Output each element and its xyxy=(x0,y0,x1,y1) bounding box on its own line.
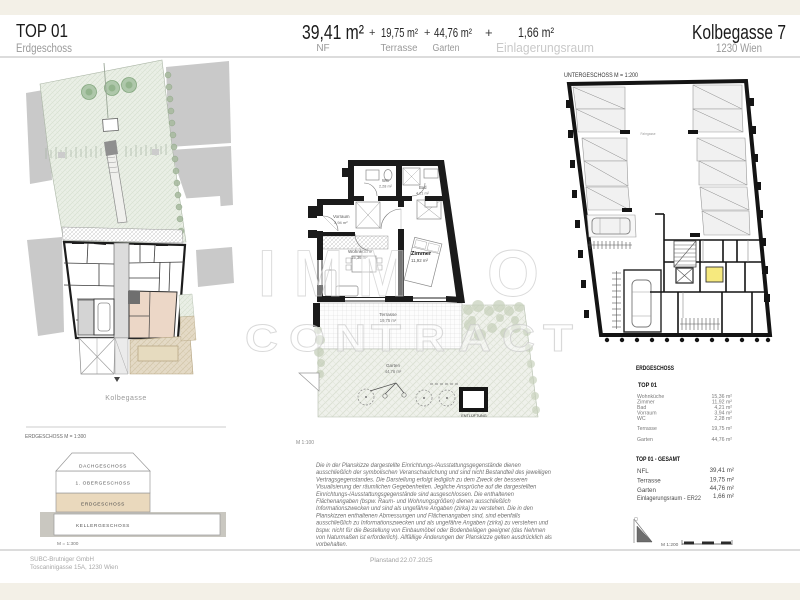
svg-text:ERDGESCHOSS M = 1:300: ERDGESCHOSS M = 1:300 xyxy=(25,434,86,440)
svg-text:44,76 m²: 44,76 m² xyxy=(712,437,733,443)
svg-text:Garten: Garten xyxy=(433,43,460,54)
svg-text:1230 Wien: 1230 Wien xyxy=(716,43,762,55)
svg-text:Visualisierung der räumlichen: Visualisierung der räumlichen Gegebenhei… xyxy=(316,484,537,490)
svg-text:WC: WC xyxy=(382,178,389,183)
svg-text:Kolbegasse 7: Kolbegasse 7 xyxy=(692,22,786,44)
svg-text:Garten: Garten xyxy=(637,437,653,443)
svg-text:NFL: NFL xyxy=(637,468,649,475)
svg-text:Einlagerungsraum - ER22: Einlagerungsraum - ER22 xyxy=(637,495,701,502)
svg-text:Die in der Planskizze dargeste: Die in der Planskizze dargestellte Einri… xyxy=(316,463,521,469)
svg-text:Terrasse: Terrasse xyxy=(637,426,657,432)
svg-text:ENTLÜFTUNG: ENTLÜFTUNG xyxy=(461,414,487,418)
svg-text:44,76 m²: 44,76 m² xyxy=(434,25,472,40)
svg-text:Zimmer: Zimmer xyxy=(411,251,432,257)
svg-text:Garten: Garten xyxy=(637,487,656,494)
svg-text:UNTERGESCHOSS M = 1:200: UNTERGESCHOSS M = 1:200 xyxy=(564,73,639,79)
svg-text:C: C xyxy=(502,318,535,360)
svg-text:Terrasse: Terrasse xyxy=(381,43,418,54)
svg-text:TOP 01: TOP 01 xyxy=(638,382,657,389)
svg-text:DACHGESCHOSS: DACHGESCHOSS xyxy=(79,464,127,470)
svg-text:+: + xyxy=(424,27,430,39)
svg-text:Planstand: Planstand xyxy=(370,557,399,564)
svg-text:1. OBERGESCHOSS: 1. OBERGESCHOSS xyxy=(75,481,130,487)
svg-text:WC: WC xyxy=(637,416,646,422)
svg-text:1,66 m²: 1,66 m² xyxy=(713,493,734,500)
svg-text:bspw. nicht für die Bestellung: bspw. nicht für die Bestellung von Einba… xyxy=(316,528,546,534)
svg-text:44,76 m²: 44,76 m² xyxy=(385,369,402,374)
svg-text:39,41 m²: 39,41 m² xyxy=(302,22,364,44)
svg-text:ERDGESCHOSS: ERDGESCHOSS xyxy=(636,365,674,372)
svg-text:I: I xyxy=(258,236,276,310)
svg-text:O: O xyxy=(289,318,325,360)
svg-text:R: R xyxy=(414,318,445,360)
svg-text:ERDGESCHOSS: ERDGESCHOSS xyxy=(81,502,125,508)
svg-text:TOP 01 - GESAMT: TOP 01 - GESAMT xyxy=(636,456,680,463)
svg-text:Toscaninigasse 15A, 1230 Wien: Toscaninigasse 15A, 1230 Wien xyxy=(30,564,119,571)
svg-text:Bad: Bad xyxy=(419,185,427,190)
svg-text:19,75 m²: 19,75 m² xyxy=(381,25,418,40)
svg-text:Einlagerungsraum: Einlagerungsraum xyxy=(496,41,594,55)
svg-text:Kolbegasse: Kolbegasse xyxy=(105,395,147,402)
svg-text:+: + xyxy=(369,27,375,39)
svg-text:M: M xyxy=(358,236,407,310)
svg-text:A: A xyxy=(458,318,491,360)
svg-text:19,75 m²: 19,75 m² xyxy=(712,426,733,432)
svg-text:M 1:100: M 1:100 xyxy=(296,440,314,446)
svg-text:44,76 m²: 44,76 m² xyxy=(710,485,734,492)
svg-text:19,75 m²: 19,75 m² xyxy=(710,477,734,484)
svg-text:ausschließlich zu Informations: ausschließlich zu Informationszwecken un… xyxy=(316,520,549,526)
svg-text:11,92 m²: 11,92 m² xyxy=(411,258,429,263)
svg-text:vorbehalten.: vorbehalten. xyxy=(316,542,347,548)
svg-text:NF: NF xyxy=(316,43,329,54)
svg-text:TOP 01: TOP 01 xyxy=(16,20,68,41)
svg-text:SUBC-Brutniger GmbH: SUBC-Brutniger GmbH xyxy=(30,556,94,563)
svg-text:39,41 m²: 39,41 m² xyxy=(710,467,734,474)
svg-text:2,28 m²: 2,28 m² xyxy=(379,185,393,189)
svg-text:Terrasse: Terrasse xyxy=(637,478,661,485)
svg-text:O: O xyxy=(487,236,539,310)
svg-text:1,66 m²: 1,66 m² xyxy=(518,25,554,40)
svg-text:Terrasse: Terrasse xyxy=(379,312,397,317)
svg-text:T: T xyxy=(371,318,401,360)
svg-text:Einrichtungs-/Ausstattungsgege: Einrichtungs-/Ausstattungsgegenstände si… xyxy=(316,492,514,498)
svg-text:+: + xyxy=(485,25,493,40)
svg-text:ausschließlich der symbolische: ausschließlich der symbolischen Veransch… xyxy=(316,470,552,476)
svg-text:22.07.2025: 22.07.2025 xyxy=(400,557,433,564)
svg-text:M = 1:300: M = 1:300 xyxy=(57,541,79,547)
svg-text:Vertragsgegenstandes. Die Dars: Vertragsgegenstandes. Die Darstellung er… xyxy=(316,477,528,483)
svg-text:Planskizzen enthaltenen Abmess: Planskizzen enthaltenen Abmessungen und … xyxy=(316,513,520,519)
svg-text:Vorraum: Vorraum xyxy=(333,214,350,219)
svg-text:T: T xyxy=(543,318,573,360)
svg-text:M: M xyxy=(294,236,343,310)
svg-text:Garten: Garten xyxy=(386,363,400,368)
svg-text:2,28 m²: 2,28 m² xyxy=(714,416,732,422)
svg-text:Flächenangaben (bspw. Raum- un: Flächenangaben (bspw. Raum- und Wohnungs… xyxy=(316,499,511,505)
svg-text:KELLERGESCHOSS: KELLERGESCHOSS xyxy=(76,523,130,529)
svg-text:M 1:200: M 1:200 xyxy=(661,542,679,548)
svg-text:N: N xyxy=(335,318,366,360)
svg-text:4,21 m²: 4,21 m² xyxy=(416,192,430,196)
svg-text:C: C xyxy=(245,318,278,360)
svg-text:Informationszwecken und sind a: Informationszwecken und sind als ungefäh… xyxy=(316,506,534,512)
svg-text:Erdgeschoss: Erdgeschoss xyxy=(16,43,72,55)
svg-text:Fahrgasse: Fahrgasse xyxy=(640,132,655,136)
svg-text:von Naturmaßen ist erforderlic: von Naturmaßen ist erforderlich). Allfäl… xyxy=(316,534,552,541)
